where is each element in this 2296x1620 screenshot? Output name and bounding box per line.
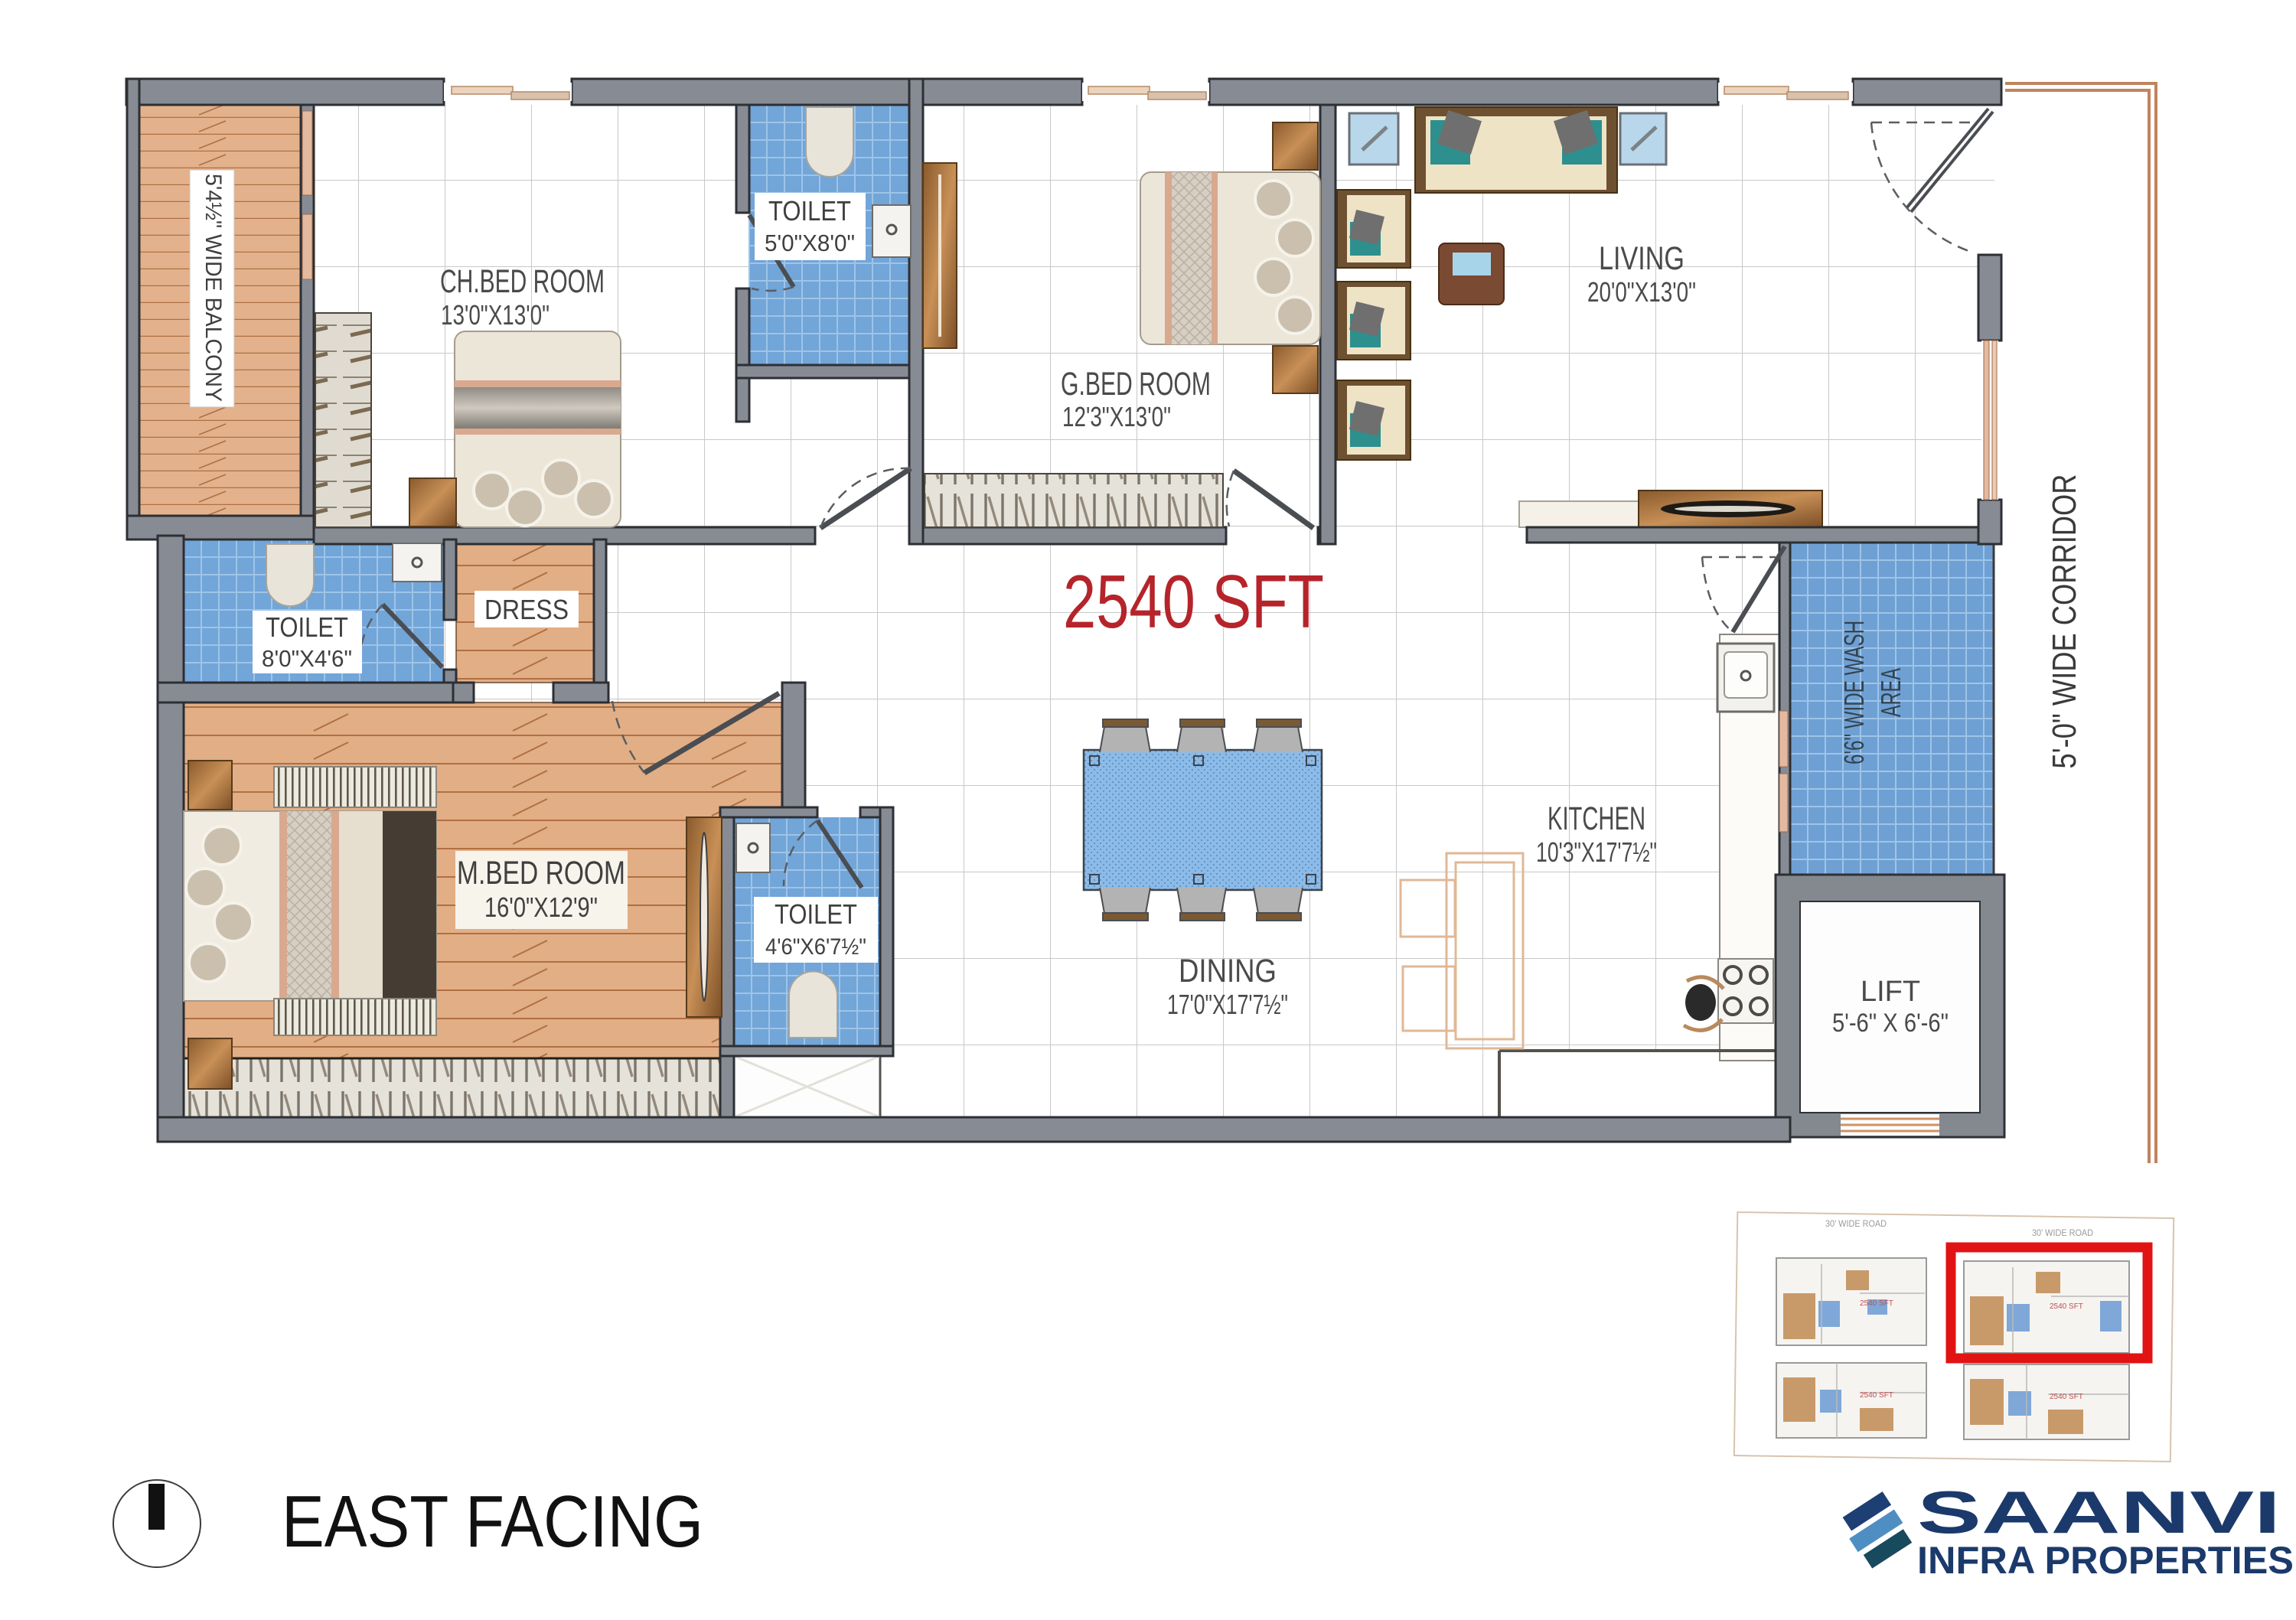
svg-text:G.BED ROOM: G.BED ROOM (1061, 366, 1211, 403)
svg-text:CH.BED ROOM: CH.BED ROOM (440, 263, 605, 300)
svg-text:M.BED ROOM: M.BED ROOM (457, 855, 625, 891)
svg-text:SAANVI: SAANVI (1917, 1478, 2281, 1546)
svg-text:17'0"X17'7½": 17'0"X17'7½" (1167, 989, 1288, 1020)
svg-text:TOILET: TOILET (266, 611, 348, 643)
svg-text:KITCHEN: KITCHEN (1548, 800, 1645, 837)
svg-text:8'0"X4'6": 8'0"X4'6" (262, 645, 352, 672)
svg-text:5'0"X8'0": 5'0"X8'0" (765, 230, 855, 256)
svg-text:20'0"X13'0": 20'0"X13'0" (1587, 276, 1696, 308)
svg-text:16'0"X12'9": 16'0"X12'9" (484, 891, 598, 923)
svg-text:LIVING: LIVING (1599, 240, 1684, 277)
svg-text:2540 SFT: 2540 SFT (1860, 1299, 1893, 1308)
svg-text:LIFT: LIFT (1861, 976, 1920, 1008)
svg-text:2540 SFT: 2540 SFT (1063, 559, 1324, 644)
svg-text:2540 SFT: 2540 SFT (2050, 1302, 2083, 1311)
svg-text:30' WIDE ROAD: 30' WIDE ROAD (2032, 1227, 2093, 1238)
svg-text:TOILET: TOILET (768, 195, 851, 227)
svg-text:DINING: DINING (1179, 953, 1277, 989)
svg-text:5'-0" WIDE CORRIDOR: 5'-0" WIDE CORRIDOR (2046, 474, 2083, 769)
svg-text:AREA: AREA (1875, 668, 1906, 717)
svg-text:4'6"X6'7½": 4'6"X6'7½" (765, 934, 866, 960)
svg-text:12'3"X13'0": 12'3"X13'0" (1062, 401, 1171, 432)
svg-text:INFRA PROPERTIES: INFRA PROPERTIES (1917, 1539, 2294, 1582)
svg-text:10'3"X17'7½": 10'3"X17'7½" (1536, 836, 1657, 868)
svg-text:TOILET: TOILET (775, 898, 857, 930)
svg-text:5'-6" X 6'-6": 5'-6" X 6'-6" (1832, 1009, 1949, 1038)
svg-text:EAST FACING: EAST FACING (282, 1481, 703, 1563)
svg-text:2540 SFT: 2540 SFT (2050, 1393, 2083, 1401)
svg-text:13'0"X13'0": 13'0"X13'0" (441, 299, 550, 331)
svg-text:5'4½" WIDE BALCONY: 5'4½" WIDE BALCONY (201, 174, 226, 402)
svg-text:DRESS: DRESS (484, 594, 569, 625)
svg-text:30' WIDE ROAD: 30' WIDE ROAD (1825, 1218, 1887, 1229)
svg-text:6'6" WIDE WASH: 6'6" WIDE WASH (1838, 621, 1870, 764)
svg-text:2540 SFT: 2540 SFT (1860, 1391, 1893, 1400)
